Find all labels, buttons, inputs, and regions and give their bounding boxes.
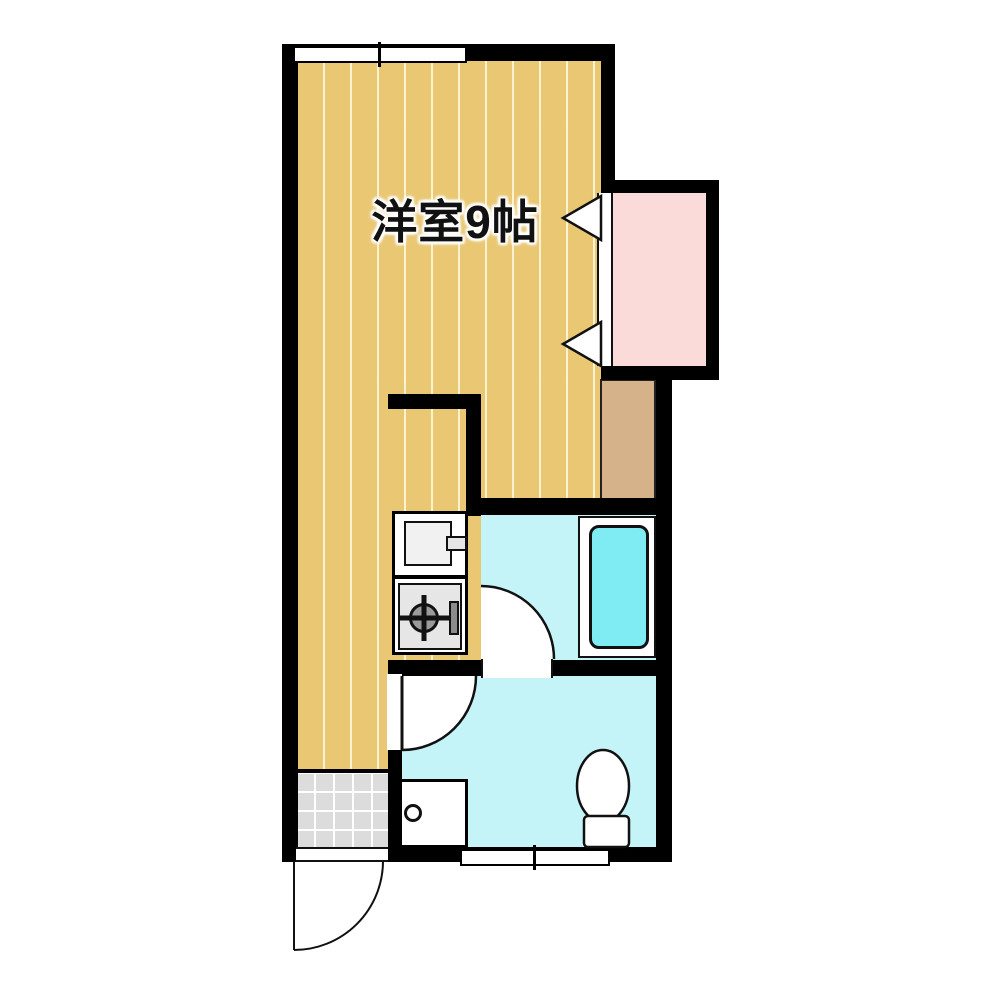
room-label: 洋室9帖 <box>305 186 605 252</box>
toilet-tank-icon <box>584 816 629 847</box>
toilet-bowl-icon <box>577 750 629 822</box>
vector-overlay <box>0 0 1000 1000</box>
entrance-door-arc <box>294 861 383 950</box>
closet-door-triangle-bottom <box>563 322 601 366</box>
floorplan-canvas: 洋室9帖 <box>0 0 1000 1000</box>
